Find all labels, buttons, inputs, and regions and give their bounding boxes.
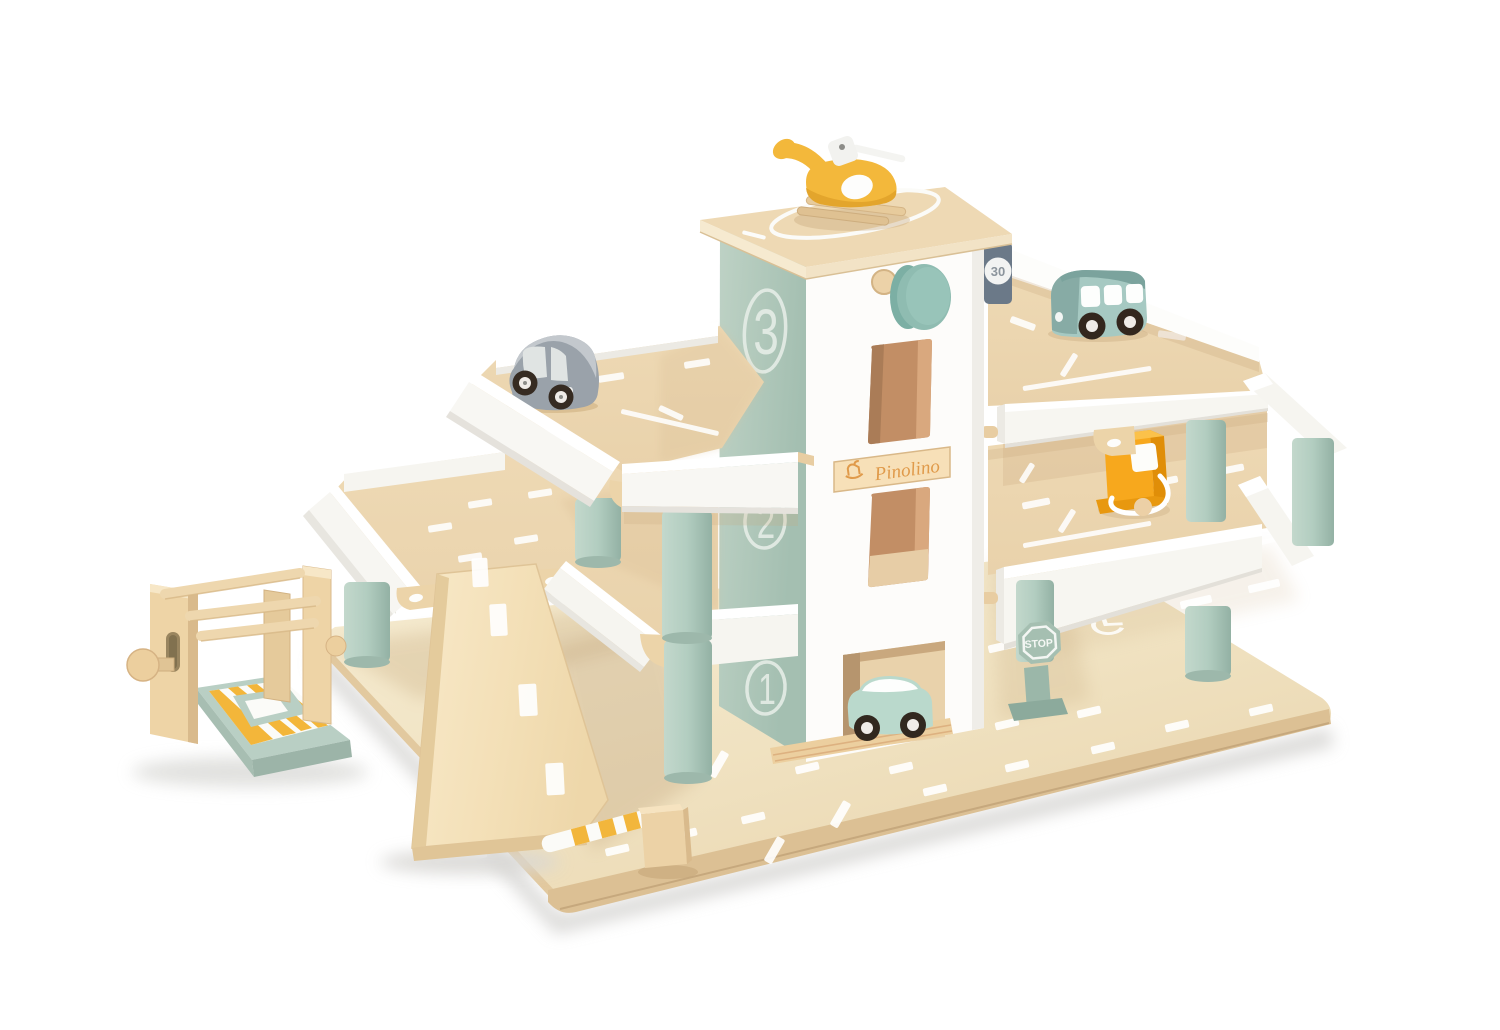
svg-text:1: 1	[758, 665, 776, 714]
svg-text:30: 30	[991, 264, 1005, 279]
svg-text:STOP: STOP	[1024, 637, 1053, 651]
svg-text:3: 3	[753, 297, 779, 368]
